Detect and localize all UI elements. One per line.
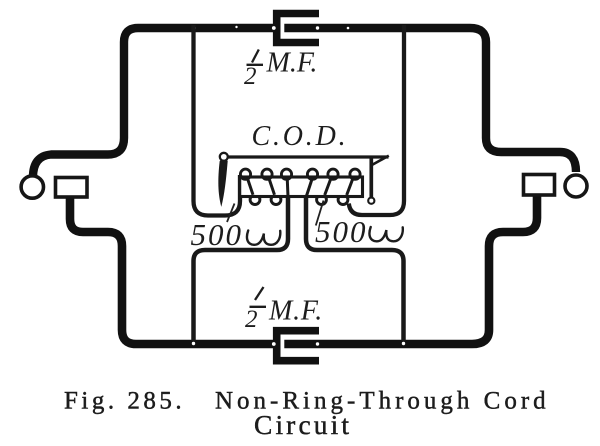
- svg-text:2: 2: [245, 306, 258, 333]
- svg-text:C.O.D.: C.O.D.: [252, 121, 349, 152]
- svg-text:M.F.: M.F.: [268, 296, 323, 327]
- svg-text:500: 500: [191, 217, 244, 252]
- svg-text:Circuit: Circuit: [254, 409, 352, 440]
- svg-text:2: 2: [244, 63, 257, 90]
- svg-text:M.F.: M.F.: [266, 48, 318, 79]
- svg-text:500: 500: [315, 214, 368, 249]
- svg-text:Fig. 285.: Fig. 285.: [64, 388, 185, 415]
